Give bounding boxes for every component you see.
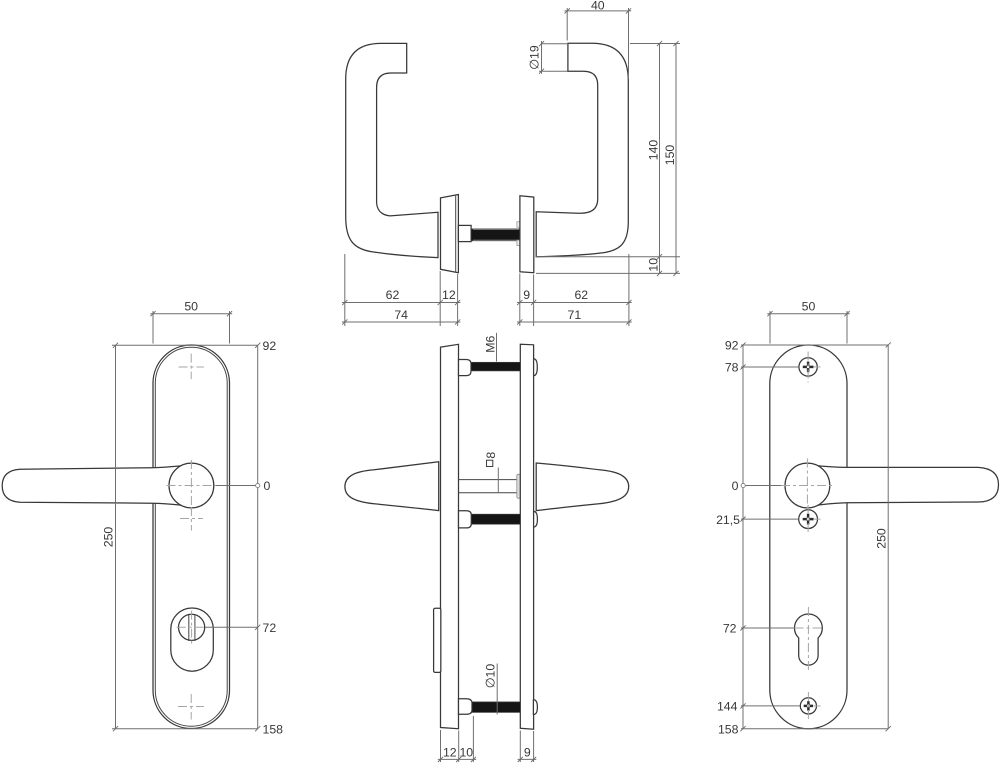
svg-text:9: 9 — [523, 288, 530, 302]
svg-text:50: 50 — [802, 300, 816, 314]
svg-text:0: 0 — [732, 479, 739, 493]
svg-text:9: 9 — [524, 745, 531, 759]
svg-text:62: 62 — [386, 288, 400, 302]
svg-text:10: 10 — [459, 745, 473, 759]
svg-text:12: 12 — [443, 745, 457, 759]
svg-text:62: 62 — [574, 288, 588, 302]
svg-text:158: 158 — [263, 722, 284, 736]
svg-text:144: 144 — [717, 700, 738, 714]
svg-text:158: 158 — [718, 722, 739, 736]
svg-text:74: 74 — [394, 308, 408, 322]
svg-text:140: 140 — [646, 140, 660, 161]
svg-text:250: 250 — [102, 527, 116, 548]
svg-text:71: 71 — [568, 308, 582, 322]
svg-text:150: 150 — [663, 145, 677, 166]
svg-text:10: 10 — [646, 258, 660, 272]
svg-text:12: 12 — [442, 288, 456, 302]
svg-text:∅10: ∅10 — [483, 664, 497, 689]
svg-text:21,5: 21,5 — [716, 513, 740, 527]
svg-text:50: 50 — [184, 300, 198, 314]
svg-text:92: 92 — [263, 339, 277, 353]
svg-text:40: 40 — [591, 0, 605, 12]
svg-text:0: 0 — [264, 479, 271, 493]
svg-text:92: 92 — [725, 339, 739, 353]
svg-text:72: 72 — [723, 622, 737, 636]
svg-text:78: 78 — [725, 361, 739, 375]
svg-text:M6: M6 — [483, 336, 497, 353]
svg-text:8: 8 — [484, 452, 498, 459]
svg-text:250: 250 — [874, 528, 888, 549]
svg-text:72: 72 — [263, 621, 277, 635]
svg-text:∅19: ∅19 — [528, 45, 542, 70]
